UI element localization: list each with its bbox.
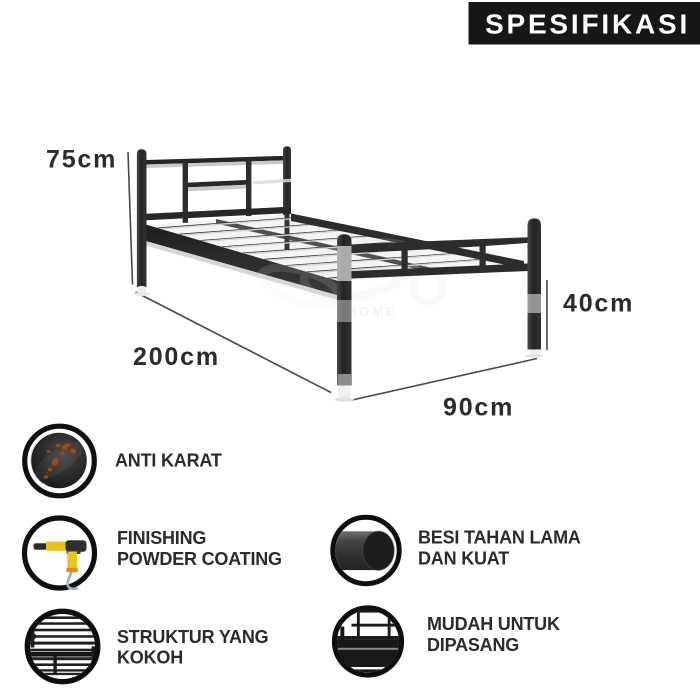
svg-text:KOKOH: KOKOH <box>117 648 183 668</box>
svg-text:STRUKTUR YANG: STRUKTUR YANG <box>117 627 268 647</box>
svg-text:MUDAH UNTUK: MUDAH UNTUK <box>427 614 560 634</box>
svg-text:FINISHING: FINISHING <box>117 528 206 548</box>
svg-text:75cm: 75cm <box>46 146 117 174</box>
svg-text:DIPASANG: DIPASANG <box>427 635 519 655</box>
svg-text:ANTI KARAT: ANTI KARAT <box>115 450 222 470</box>
svg-text:200cm: 200cm <box>133 343 220 371</box>
svg-text:BESI TAHAN LAMA: BESI TAHAN LAMA <box>418 528 581 548</box>
svg-text:SPESIFIKASI: SPESIFIKASI <box>485 9 690 40</box>
svg-text:DAN KUAT: DAN KUAT <box>418 549 509 569</box>
svg-text:POWDER COATING: POWDER COATING <box>117 549 282 569</box>
svg-text:90cm: 90cm <box>443 394 514 422</box>
svg-text:40cm: 40cm <box>563 290 634 318</box>
